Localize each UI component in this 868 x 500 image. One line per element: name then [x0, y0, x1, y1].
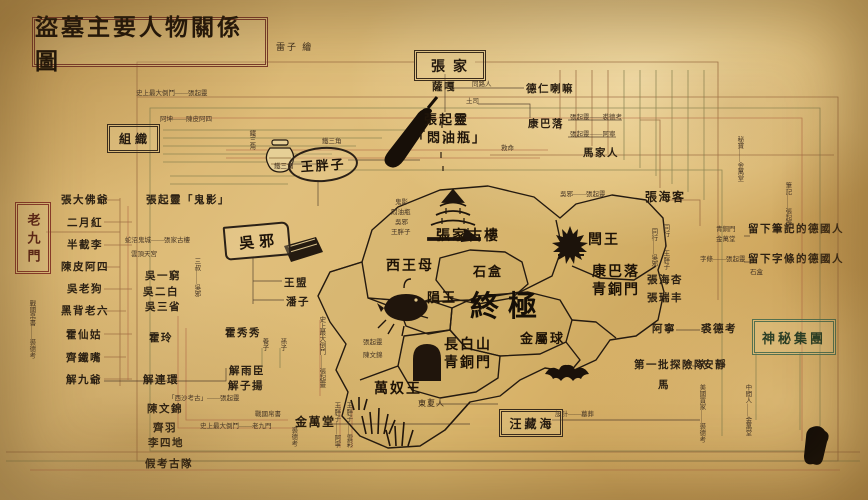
group-box-laojiumen: 老九門 [15, 202, 51, 274]
link-label: 吳邪 [395, 220, 408, 227]
person-name: 張瑞丰 [647, 293, 683, 304]
relationship-diagram-canvas: 盜墓主要人物關係圖 雷子 繪 張家 組織 老九門 神秘集團 汪藏海 吳邪 王胖子… [0, 0, 868, 500]
person-name: 霍秀秀 [225, 328, 261, 339]
page-title: 盜墓主要人物關係圖 [32, 17, 268, 67]
person-name: 解雨臣 [229, 366, 265, 377]
person-name: 康巴落 [528, 119, 564, 130]
person-name: 霍仙姑 [66, 330, 102, 341]
cave-icon [413, 344, 441, 381]
link-label: 金萬堂 [716, 237, 736, 244]
link-label: 鐵三角 [274, 164, 294, 171]
link-label: 美國買家——裘德考 [697, 384, 704, 443]
group-label: 老九門 [24, 213, 43, 267]
person-name: 假考古隊 [145, 459, 193, 470]
person-name: 解子揚 [228, 381, 264, 392]
link-label: 王胖子——阿寧 [332, 402, 339, 448]
person-name: 張海杏 [647, 275, 683, 286]
person-name: 張海客 [645, 191, 686, 204]
link-label: 石盒 [750, 270, 763, 277]
link-label: 阿坤——陳皮阿四 [160, 117, 212, 124]
artist-credit: 雷子 繪 [276, 40, 313, 53]
person-name: 德仁喇嘛 [526, 84, 574, 95]
link-label: 三叔——吳邪 [192, 258, 199, 297]
link-label: 史上最大倒鬥——老九門 [200, 424, 272, 431]
person-name: 留下筆記的德國人 [748, 224, 844, 235]
link-label: 陳文錦 [363, 353, 383, 360]
person-name: 吳三省 [145, 302, 181, 313]
person-name: 李四地 [148, 438, 184, 449]
map-region-label: 隕玉 [427, 291, 457, 305]
group-box-wangzanghai: 汪藏海 [499, 409, 563, 437]
person-name: 張大佛爺 [61, 195, 109, 206]
person-name: 「悶油瓶」 [412, 131, 487, 145]
person-name: 黑背老六 [61, 306, 109, 317]
link-label: 「西沙考古」——張起靈 [168, 396, 240, 403]
person-name: 二月紅 [67, 218, 103, 229]
link-label: 字條——張起靈 [700, 257, 746, 264]
person-name: 馬 [658, 380, 670, 391]
link-label: 筆記——張起靈 [783, 182, 790, 228]
map-region-label: 萬奴王 [374, 383, 422, 398]
person-name: 半截李 [67, 240, 103, 251]
link-label: 蛇沼鬼城——張家古樓 [125, 238, 190, 245]
link-label: 土司 [466, 99, 479, 106]
person-name: 解連環 [143, 375, 179, 386]
link-label: 張起靈——阿寧 [570, 132, 616, 139]
link-label: 戰國帛書——裘德考 [27, 300, 34, 359]
person-name: 留下字條的德國人 [748, 254, 844, 265]
person-name: 阿寧 [652, 324, 676, 335]
map-region-label: 青銅門 [592, 284, 640, 299]
person-name: 張起靈「鬼影」 [146, 195, 230, 206]
group-label: 汪藏海 [509, 415, 554, 432]
link-label: 設計——墓葬 [555, 412, 594, 419]
person-name: 薩嘎 [432, 82, 456, 93]
link-label: 戰國帛書 [255, 412, 281, 419]
map-region-label: 張家古樓 [436, 230, 500, 245]
map-region-label: 康巴落 [592, 266, 640, 281]
person-name: 王胖子 [300, 153, 346, 175]
group-label: 神秘集團 [762, 328, 826, 347]
person-name: 霍玲 [149, 333, 173, 344]
link-label: 鐵三角 [322, 139, 342, 146]
group-box-zuzhi: 組織 [107, 124, 160, 153]
link-label: 裘德考 [289, 427, 296, 447]
link-label: 鬼影 [395, 200, 408, 207]
person-name: 解九爺 [66, 375, 102, 386]
seal-stamp [804, 426, 829, 465]
link-label: 吳邪——張起靈 [560, 192, 606, 199]
person-name: 吳邪 [238, 229, 280, 253]
link-label: 王胖子 [391, 230, 411, 237]
link-label: 養子 [260, 338, 267, 351]
map-region-label: 閆王 [588, 234, 620, 249]
link-label: 張起靈 [363, 340, 383, 347]
group-label: 張家 [431, 56, 475, 76]
page-title-text: 盜墓主要人物關係圖 [35, 8, 265, 76]
link-label: 張起靈——裘德考 [570, 115, 622, 122]
link-label: 中間人——金萬堂 [743, 384, 750, 436]
person-name: 齊羽 [153, 423, 177, 434]
link-label: 史上最大倒鬥——張起靈 [136, 91, 208, 98]
person-name: 第一批探險隊 [634, 360, 706, 371]
map-region-label: 終極 [470, 292, 546, 322]
person-name: 馬家人 [583, 148, 619, 159]
link-label: 同路人 [472, 82, 492, 89]
link-label: 青銅門 [716, 227, 736, 234]
map-region-label: 金屬球 [520, 332, 565, 346]
person-name: 陳文錦 [147, 404, 183, 415]
link-label: 東夏人 [418, 400, 445, 408]
group-box-zhangjia: 張家 [414, 50, 486, 81]
wuxie-node: 吳邪 [223, 221, 292, 261]
link-label: 鐵三角 [247, 130, 254, 150]
link-label: 史上最大倒鬥——張起靈 [317, 316, 324, 388]
link-label: 悶油瓶 [391, 210, 411, 217]
link-label: 孫子 [278, 338, 285, 351]
person-name: 安靜 [703, 360, 727, 371]
person-name: 潘子 [286, 297, 310, 308]
link-label: 雲頂天宮 [131, 252, 157, 259]
group-box-shenmi-jituan: 神秘集團 [752, 319, 836, 355]
person-name: 齊鐵嘴 [66, 353, 102, 364]
group-label: 組織 [119, 130, 151, 147]
map-region-label: 西王母 [386, 260, 434, 275]
link-label: 救命 [501, 146, 514, 153]
person-name: 張起靈 [424, 113, 469, 127]
link-label: 秘寶——金萬堂 [735, 136, 742, 182]
map-region-label: 長白山 [444, 339, 492, 354]
person-name: 陳皮阿四 [61, 262, 109, 273]
person-name: 吳老狗 [67, 284, 103, 295]
link-label: 同行——王胖子 [661, 224, 668, 270]
person-name: 裘德考 [701, 324, 737, 335]
person-name: 王盟 [284, 278, 308, 289]
map-region-label: 青銅門 [444, 357, 492, 372]
person-name: 金萬堂 [295, 416, 336, 429]
map-region-label: 石盒 [473, 265, 503, 279]
link-label: 王胖子——雲彩 [344, 402, 351, 448]
person-name: 吳二白 [143, 287, 179, 298]
link-label: 同行——吳邪 [649, 228, 656, 267]
person-name: 吳一窮 [145, 271, 181, 282]
